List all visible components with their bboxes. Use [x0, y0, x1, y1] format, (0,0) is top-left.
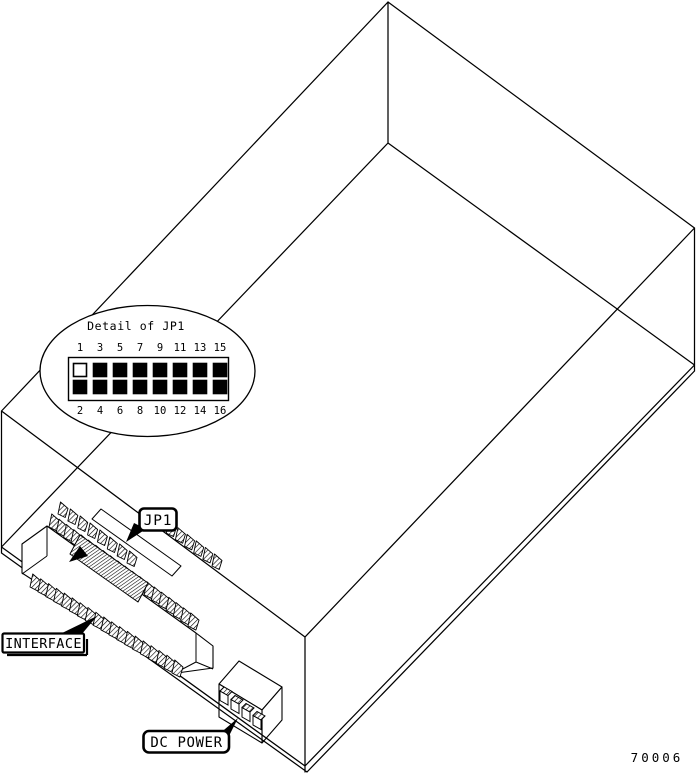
pin-square-filled	[114, 364, 127, 377]
jp1-pin	[203, 547, 213, 563]
jp1-pin	[185, 534, 195, 550]
pin-square-filled	[194, 364, 207, 377]
pin-number-bottom: 14	[194, 405, 207, 417]
pin-square-filled	[194, 381, 207, 394]
drive-illustration: Detail of JP1 12345678910111213141516 JP…	[0, 0, 696, 775]
jp1-pin	[107, 537, 117, 553]
jp1-pin	[194, 541, 204, 557]
callout-title: Detail of JP1	[87, 319, 185, 333]
pin-square-filled	[114, 381, 127, 394]
pin-square-filled	[94, 381, 107, 394]
pin-square-filled	[154, 364, 167, 377]
pin-number-bottom: 8	[137, 405, 143, 417]
pin-number-top: 13	[194, 342, 207, 354]
pin-square-filled	[74, 381, 87, 394]
pin-number-bottom: 16	[214, 405, 227, 417]
jp1-pin	[97, 530, 107, 546]
hardware-diagram-page: Detail of JP1 12345678910111213141516 JP…	[0, 0, 696, 775]
jp1-pin	[88, 523, 98, 539]
jp1-pin	[68, 509, 78, 525]
pin-number-top: 9	[157, 342, 163, 354]
pin-square-filled	[214, 364, 227, 377]
pin-number-top: 1	[77, 342, 83, 354]
pin-number-top: 15	[214, 342, 227, 354]
pin-number-top: 7	[137, 342, 143, 354]
jp1-pin	[117, 544, 127, 560]
pin-square-filled	[154, 381, 167, 394]
pin-number-bottom: 10	[154, 405, 167, 417]
jp1-pin	[127, 551, 137, 567]
pin-number-top: 5	[117, 342, 123, 354]
jp1-label-text: JP1	[144, 513, 173, 529]
pin-number-top: 11	[174, 342, 187, 354]
pin-square-filled	[174, 364, 187, 377]
pin-number-bottom: 12	[174, 405, 187, 417]
pin-square-filled	[134, 381, 147, 394]
pin-square-open	[74, 364, 87, 377]
jp1-pin	[212, 554, 222, 570]
dc-power-label-text: DC POWER	[150, 735, 222, 751]
dc-power-label: DC POWER	[144, 718, 239, 753]
pin-number-bottom: 6	[117, 405, 123, 417]
jp1-pin	[78, 516, 88, 532]
pin-square-filled	[134, 364, 147, 377]
jp1-pin	[58, 502, 68, 518]
pin-number-bottom: 2	[77, 405, 83, 417]
pin-square-filled	[174, 381, 187, 394]
pin-square-filled	[94, 364, 107, 377]
jp1-detail-callout: Detail of JP1 12345678910111213141516	[40, 306, 255, 437]
interface-label-text: INTERFACE	[5, 636, 82, 652]
pin-number-top: 3	[97, 342, 103, 354]
part-number: 70006	[631, 750, 684, 765]
jp1-pin	[175, 528, 185, 544]
pin-square-filled	[214, 381, 227, 394]
pin-number-bottom: 4	[97, 405, 103, 417]
interface-label: INTERFACE	[3, 616, 98, 655]
jp1-label: JP1	[126, 509, 177, 543]
